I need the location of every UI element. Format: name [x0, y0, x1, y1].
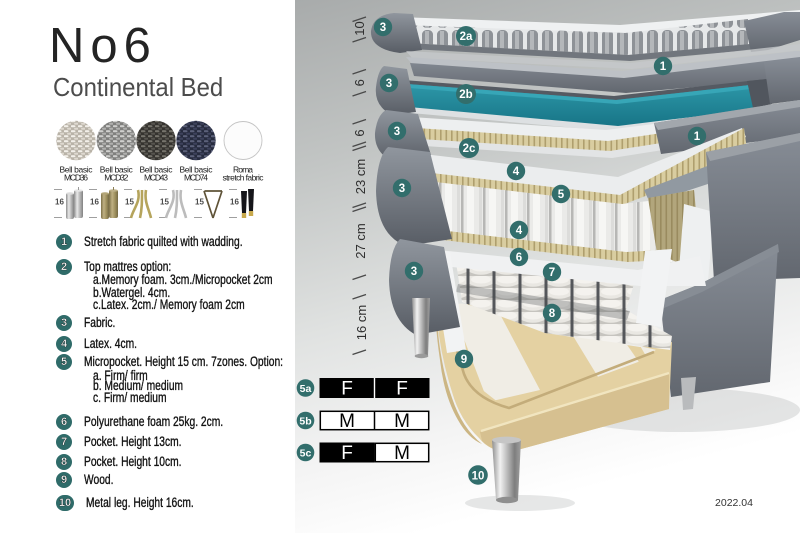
svg-text:8: 8 — [549, 308, 556, 320]
svg-text:16 cm: 16 cm — [354, 305, 369, 340]
svg-text:2b: 2b — [459, 89, 472, 101]
svg-text:10: 10 — [352, 21, 367, 35]
svg-text:2a: 2a — [460, 31, 473, 43]
svg-text:M: M — [394, 443, 410, 464]
svg-text:6: 6 — [352, 129, 367, 136]
svg-text:5b: 5b — [299, 416, 311, 428]
svg-text:3: 3 — [386, 78, 392, 90]
svg-text:10: 10 — [472, 470, 485, 482]
svg-text:M: M — [339, 411, 355, 432]
svg-text:2022.04: 2022.04 — [715, 497, 753, 509]
svg-text:3: 3 — [394, 126, 400, 138]
svg-text:23 cm: 23 cm — [353, 159, 368, 194]
svg-text:27 cm: 27 cm — [353, 223, 368, 258]
svg-text:6: 6 — [352, 79, 367, 86]
svg-text:1: 1 — [694, 131, 701, 143]
svg-text:2c: 2c — [463, 143, 476, 155]
svg-text:7: 7 — [549, 267, 555, 279]
svg-text:M: M — [394, 411, 410, 432]
svg-text:F: F — [341, 443, 353, 464]
svg-text:9: 9 — [461, 354, 467, 366]
svg-text:3: 3 — [380, 22, 386, 34]
svg-text:5a: 5a — [300, 383, 312, 395]
svg-text:5: 5 — [558, 189, 565, 201]
svg-text:4: 4 — [516, 225, 523, 237]
svg-text:1: 1 — [660, 61, 667, 73]
svg-text:5c: 5c — [300, 448, 312, 460]
svg-text:4: 4 — [513, 166, 520, 178]
svg-text:6: 6 — [516, 252, 522, 264]
svg-text:3: 3 — [399, 183, 405, 195]
svg-text:F: F — [396, 379, 408, 400]
svg-text:F: F — [341, 379, 353, 400]
svg-text:3: 3 — [411, 266, 417, 278]
